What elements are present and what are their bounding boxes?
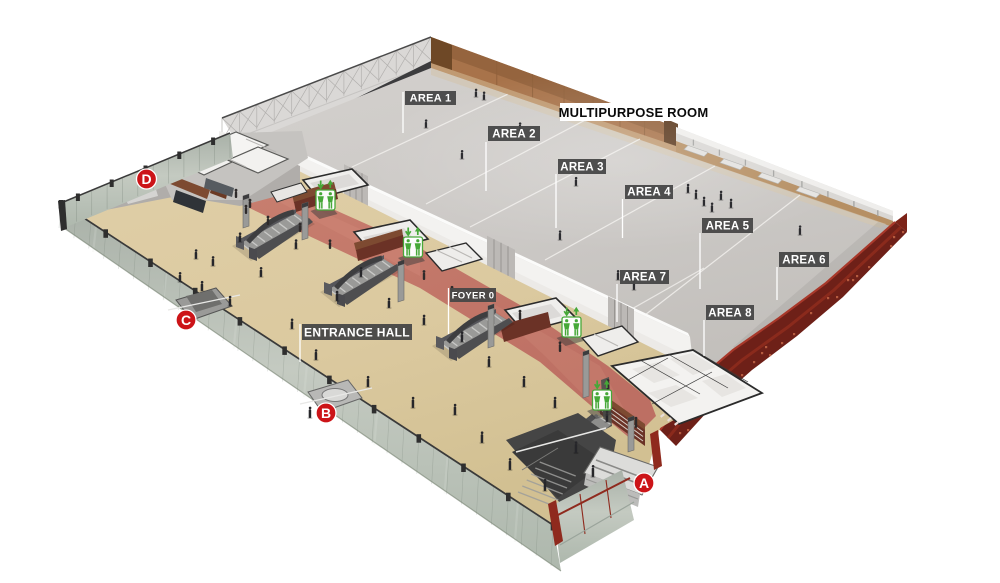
- svg-text:AREA 6: AREA 6: [782, 255, 826, 267]
- svg-text:AREA 7: AREA 7: [623, 272, 667, 284]
- svg-text:D: D: [141, 171, 151, 187]
- svg-text:AREA 8: AREA 8: [708, 308, 752, 320]
- svg-text:AREA 5: AREA 5: [706, 221, 750, 233]
- svg-text:AREA 2: AREA 2: [492, 129, 536, 141]
- svg-text:C: C: [181, 312, 191, 328]
- svg-text:MULTIPURPOSE ROOM: MULTIPURPOSE ROOM: [559, 105, 709, 120]
- svg-text:AREA 3: AREA 3: [560, 162, 604, 174]
- svg-text:A: A: [639, 475, 649, 491]
- svg-text:AREA 4: AREA 4: [627, 187, 671, 199]
- svg-text:AREA 1: AREA 1: [410, 93, 452, 105]
- svg-text:FOYER 0: FOYER 0: [452, 291, 495, 302]
- svg-text:B: B: [321, 405, 331, 421]
- svg-text:ENTRANCE HALL: ENTRANCE HALL: [304, 326, 410, 340]
